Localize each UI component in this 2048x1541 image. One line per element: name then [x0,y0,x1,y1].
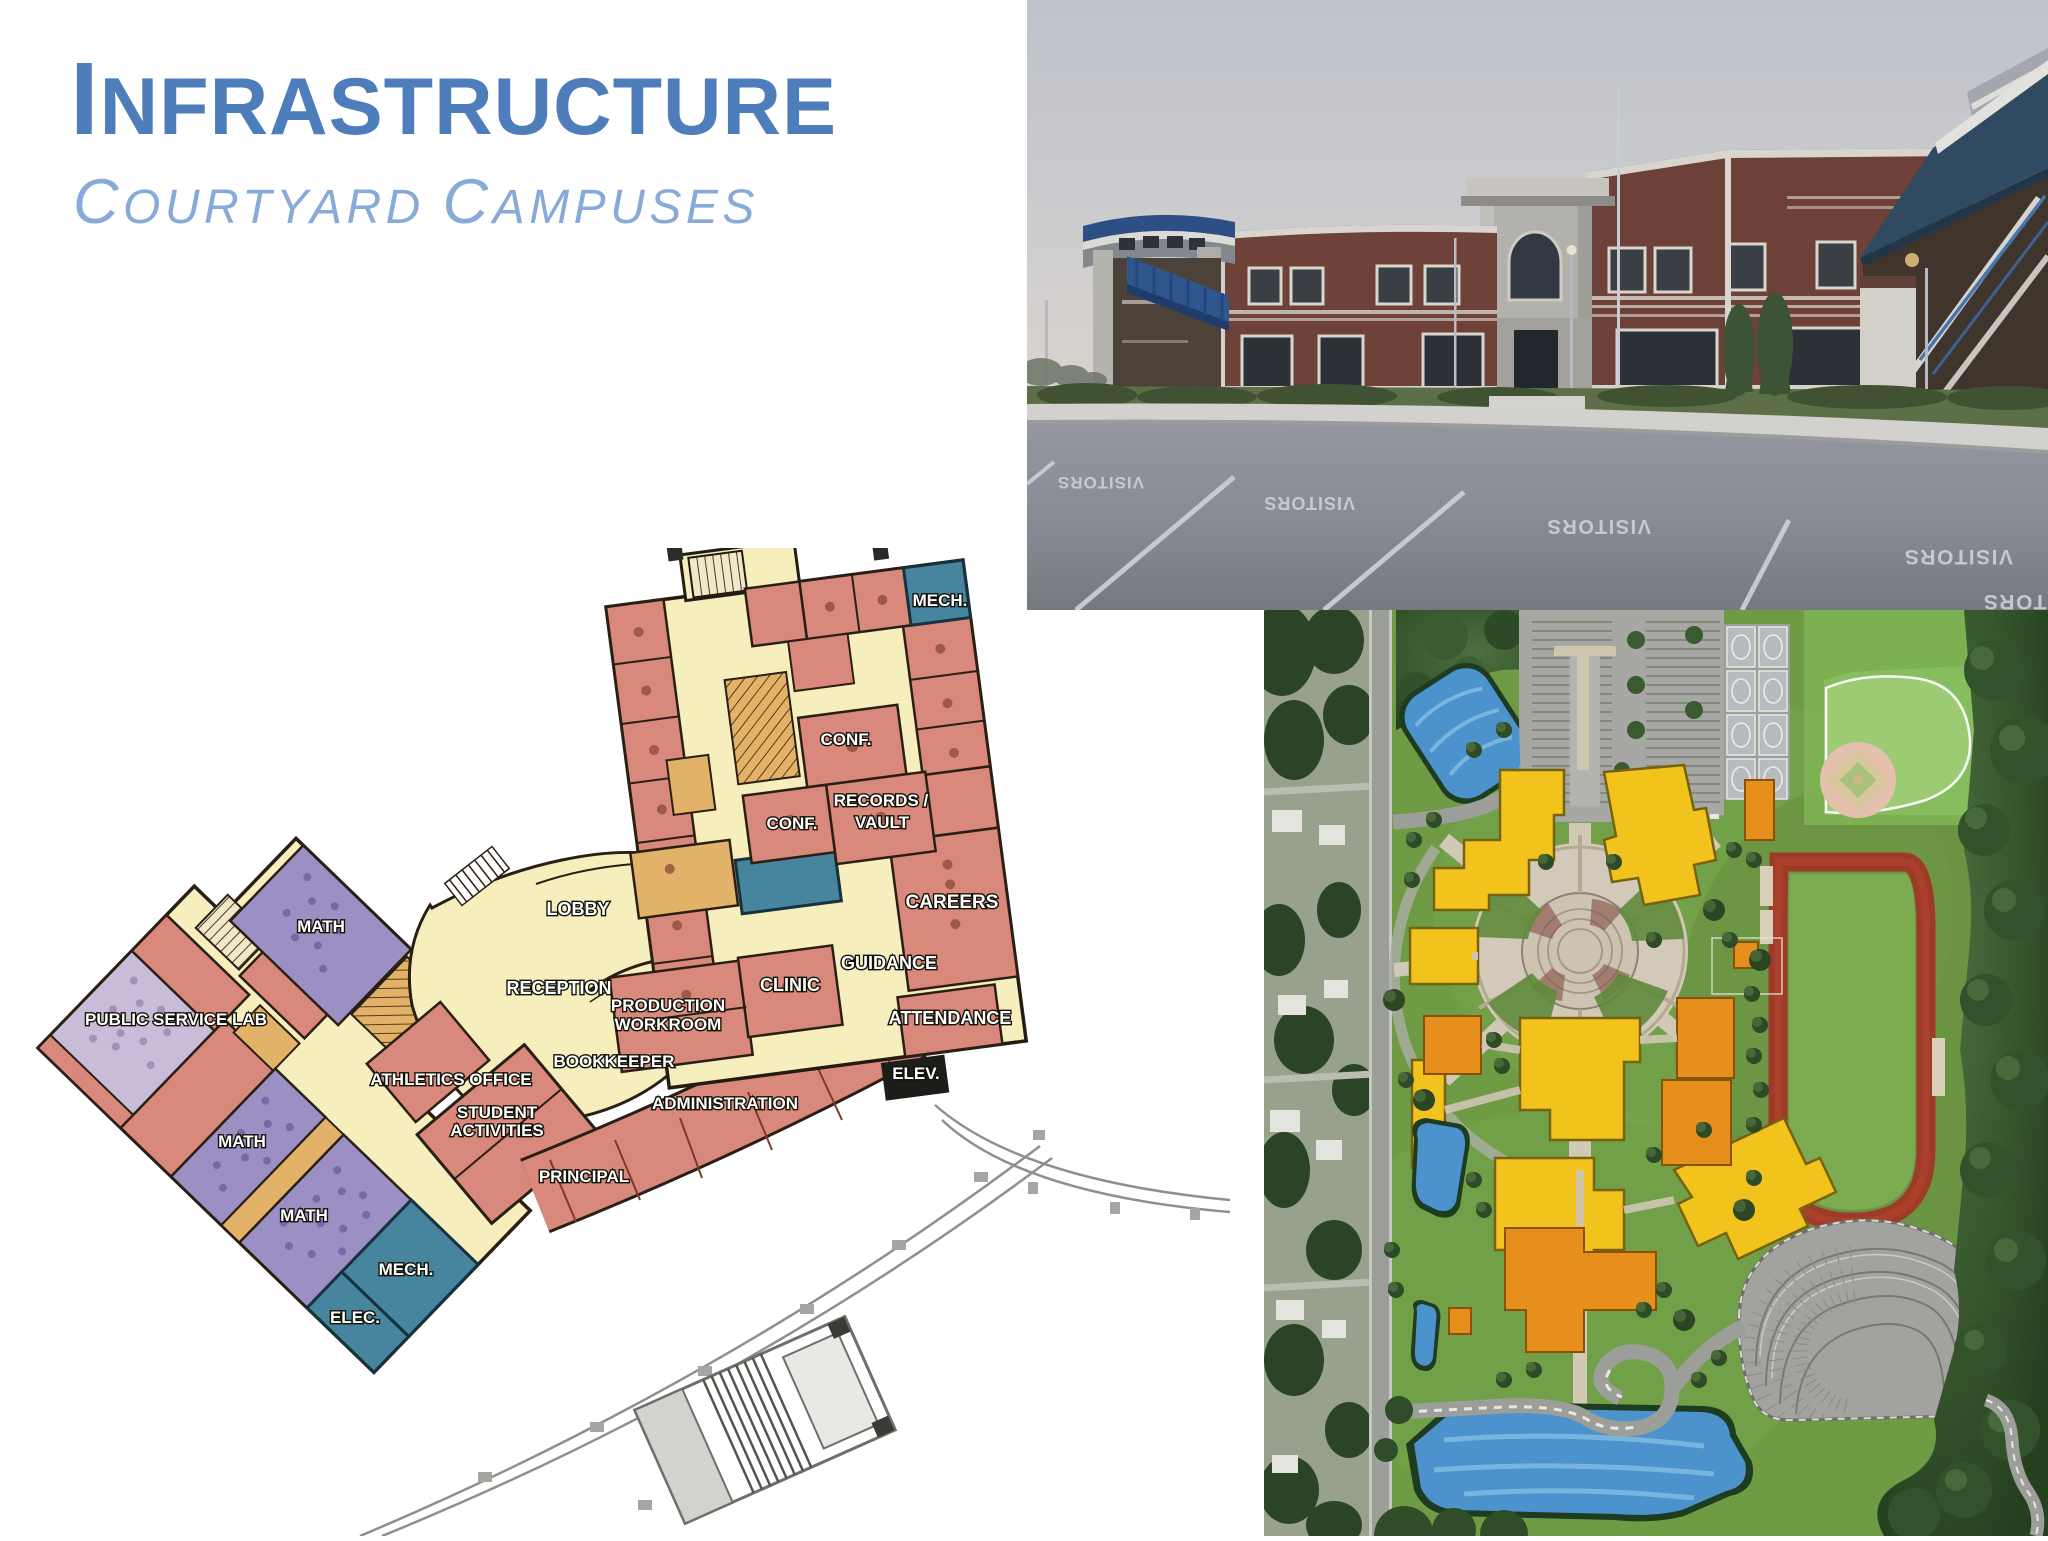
svg-text:LOBBY: LOBBY [547,899,610,919]
svg-text:BOOKKEEPER: BOOKKEEPER [554,1052,675,1071]
svg-text:VAULT: VAULT [855,813,910,832]
svg-text:VISITORS: VISITORS [1057,473,1144,492]
svg-text:ELEV.: ELEV. [892,1064,940,1083]
svg-text:PRINCIPAL: PRINCIPAL [539,1167,629,1186]
svg-text:MECH.: MECH. [913,591,968,610]
svg-text:ATTENDANCE: ATTENDANCE [889,1008,1012,1028]
svg-text:ELEC.: ELEC. [330,1308,380,1327]
svg-text:VISITORS: VISITORS [1263,493,1355,513]
svg-text:PRODUCTION: PRODUCTION [611,996,725,1015]
svg-text:STUDENT: STUDENT [457,1103,538,1122]
svg-text:WORKROOM: WORKROOM [615,1015,722,1034]
svg-text:VISITORS: VISITORS [1903,545,2013,568]
svg-text:ADMINISTRATION: ADMINISTRATION [652,1094,798,1113]
svg-text:VISITORS: VISITORS [1546,515,1651,537]
svg-text:RECEPTION: RECEPTION [506,978,611,998]
svg-text:CLINIC: CLINIC [760,975,820,995]
svg-text:CONF.: CONF. [821,730,872,749]
svg-text:ACTIVITIES: ACTIVITIES [450,1121,544,1140]
svg-text:MECH.: MECH. [379,1260,434,1279]
svg-text:MATH: MATH [280,1206,328,1225]
svg-text:MATH: MATH [218,1132,266,1151]
svg-text:PUBLIC SERVICE LAB: PUBLIC SERVICE LAB [85,1010,267,1029]
svg-text:GUIDANCE: GUIDANCE [841,953,937,973]
svg-text:RECORDS /: RECORDS / [834,791,929,810]
svg-text:CAREERS: CAREERS [906,892,999,913]
svg-text:MATH: MATH [297,917,345,936]
svg-text:ATHLETICS OFFICE: ATHLETICS OFFICE [370,1070,531,1089]
svg-text:CONF.: CONF. [767,814,818,833]
svg-text:VISITORS: VISITORS [1982,590,2048,610]
